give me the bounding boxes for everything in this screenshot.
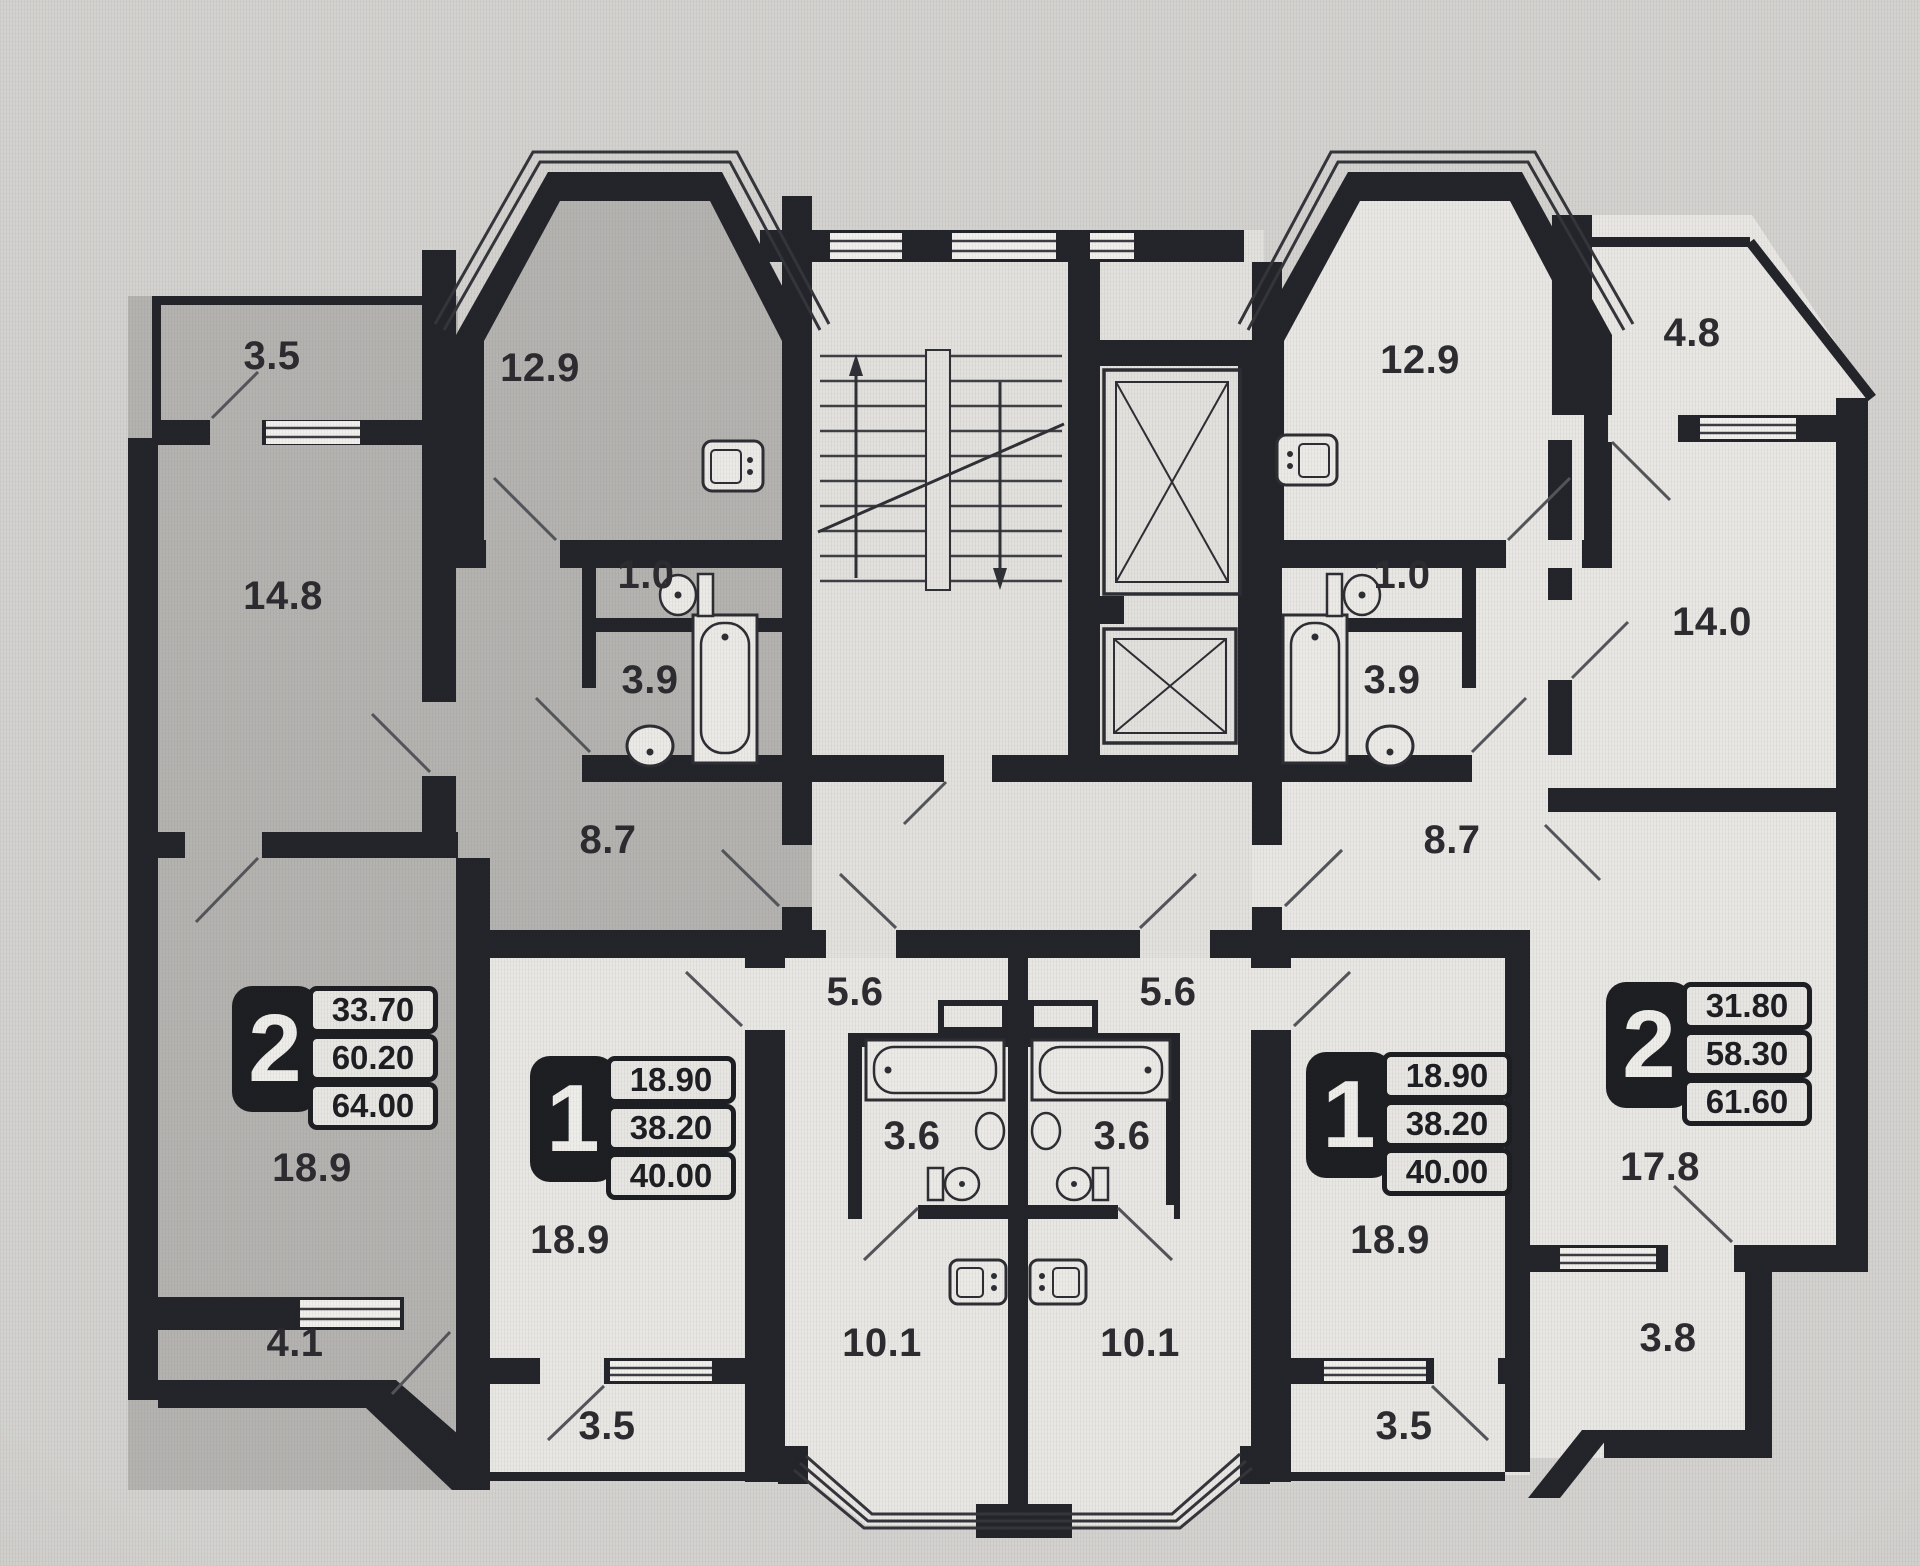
room-area-label: 3.8 (1639, 1318, 1696, 1358)
total-area-value: 40.00 (606, 1152, 736, 1200)
toilet-icon (1327, 574, 1380, 616)
apartment-badge-mid-right: 1 18.90 38.20 40.00 (1306, 1052, 1512, 1178)
kitchen-sink-icon (1030, 1260, 1086, 1304)
room-area-label: 3.5 (578, 1406, 635, 1446)
room-area-label: 17.8 (1620, 1147, 1700, 1187)
room-area-label: 10.1 (842, 1323, 922, 1363)
apartment-badge-mid-left: 1 18.90 38.20 40.00 (530, 1056, 736, 1182)
apartment-badge-left: 2 33.70 60.20 64.00 (232, 986, 438, 1112)
room-area-label: 18.9 (1350, 1220, 1430, 1260)
unit-areas: 18.90 38.20 40.00 (606, 1056, 736, 1182)
window-right-balcony (1700, 418, 1796, 439)
window-right-loggia (1560, 1248, 1656, 1269)
sink-icon (1032, 1113, 1060, 1149)
total-area-value: 61.60 (1682, 1078, 1812, 1126)
bathtub-icon (1283, 615, 1347, 763)
room-area-label: 4.8 (1663, 313, 1720, 353)
living-area-value: 31.80 (1682, 982, 1812, 1030)
kitchen-sink-icon (950, 1260, 1006, 1304)
stair-stringer (926, 350, 950, 590)
unit-type-number: 2 (1606, 982, 1692, 1108)
room-area-label: 3.5 (1375, 1406, 1432, 1446)
room-area-label: 3.9 (1363, 660, 1420, 700)
room-area-label: 3.9 (621, 660, 678, 700)
room-area-label: 3.6 (1093, 1116, 1150, 1156)
usable-area-value: 38.20 (606, 1104, 736, 1152)
bathtub-icon (693, 615, 757, 763)
sink-icon (627, 726, 673, 766)
living-area-value: 33.70 (308, 986, 438, 1034)
unit-type-number: 2 (232, 986, 318, 1112)
total-area-value: 64.00 (308, 1082, 438, 1130)
usable-area-value: 58.30 (1682, 1030, 1812, 1078)
living-area-value: 18.90 (606, 1056, 736, 1104)
kitchen-sink-icon (703, 441, 763, 491)
room-area-label: 14.8 (243, 576, 323, 616)
bathtub-icon (866, 1040, 1004, 1100)
unit-areas: 31.80 58.30 61.60 (1682, 982, 1812, 1108)
total-area-value: 40.00 (1382, 1148, 1512, 1196)
usable-area-value: 60.20 (308, 1034, 438, 1082)
apartment-badge-right: 2 31.80 58.30 61.60 (1606, 982, 1812, 1108)
room-area-label: 1.0 (1373, 555, 1430, 595)
toilet-icon (928, 1168, 979, 1200)
room-area-label: 12.9 (1380, 340, 1460, 380)
unit-areas: 18.90 38.20 40.00 (1382, 1052, 1512, 1178)
room-area-label: 18.9 (272, 1148, 352, 1188)
room-area-label: 1.0 (617, 555, 674, 595)
room-area-label: 8.7 (1423, 820, 1480, 860)
usable-area-value: 38.20 (1382, 1100, 1512, 1148)
floor-plan-photo: 3.5 14.8 12.9 1.0 3.9 8.7 18.9 4.1 5.6 3… (0, 0, 1920, 1566)
room-area-label: 3.6 (883, 1116, 940, 1156)
unit-type-number: 1 (530, 1056, 616, 1182)
toilet-icon (1057, 1168, 1108, 1200)
unit-type-number: 1 (1306, 1052, 1392, 1178)
bathtub-icon (1032, 1040, 1170, 1100)
mask-bottomright (1772, 1272, 1872, 1462)
room-area-label: 18.9 (530, 1220, 610, 1260)
room-area-label: 10.1 (1100, 1323, 1180, 1363)
room-area-label: 8.7 (579, 820, 636, 860)
room-area-label: 12.9 (500, 348, 580, 388)
room-area-label: 5.6 (826, 972, 883, 1012)
unit-areas: 33.70 60.20 64.00 (308, 986, 438, 1112)
room-area-label: 3.5 (243, 336, 300, 376)
window-ml-balcony (610, 1361, 712, 1381)
window-left-balcony (266, 421, 360, 444)
room-area-label: 4.1 (266, 1323, 323, 1363)
room-area-label: 14.0 (1672, 602, 1752, 642)
sink-icon (1367, 726, 1413, 766)
living-area-value: 18.90 (1382, 1052, 1512, 1100)
kitchen-sink-icon (1277, 435, 1337, 485)
sink-icon (976, 1113, 1004, 1149)
window-mr-balcony (1324, 1361, 1426, 1381)
room-area-label: 5.6 (1139, 972, 1196, 1012)
